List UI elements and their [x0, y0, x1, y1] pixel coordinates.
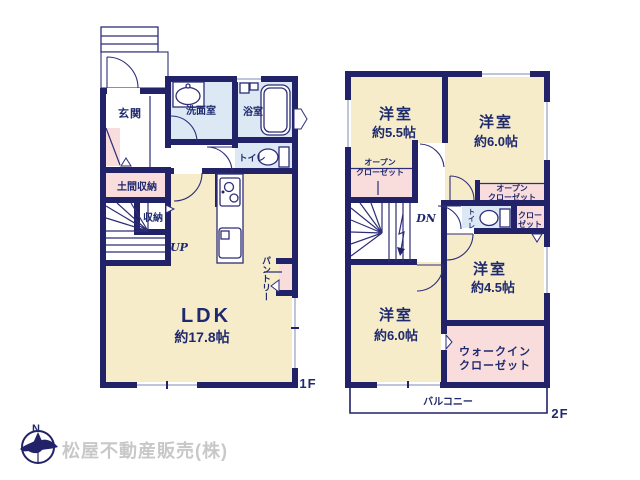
label-open-closet-left-2: クローゼット — [356, 167, 404, 177]
stairs-2f-floor — [348, 200, 420, 262]
company-name: 松屋不動産販売(株) — [62, 440, 228, 461]
label-closet-1: クロー — [518, 210, 542, 220]
label-room45-size: 約4.5帖 — [471, 280, 515, 295]
label-toilet-1f: トイレ — [238, 153, 265, 163]
label-open-closet-right-2: クローゼット — [488, 192, 536, 202]
label-up: UP — [170, 241, 189, 254]
toilet-icon-2f — [500, 209, 510, 227]
label-ldk: LDK — [181, 305, 231, 327]
label-pantry: パントリー — [261, 256, 271, 301]
label-wic-1: ウォークイン — [459, 345, 531, 358]
label-bathroom: 浴室 — [243, 105, 263, 118]
floorplan-1f: 玄関 洗面室 浴室 トイレ 土間収納 収納 UP LDK 約17.8帖 パントリ… — [100, 27, 317, 391]
floorplan-page: 玄関 洗面室 浴室 トイレ 土間収納 収納 UP LDK 約17.8帖 パントリ… — [0, 0, 640, 480]
label-ldk-size: 約17.8帖 — [174, 329, 229, 345]
label-balcony: バルコニー — [423, 396, 473, 408]
label-open-closet-right-1: オープン — [496, 183, 528, 193]
label-room60-top: 洋室 — [479, 113, 513, 131]
label-washroom: 洗面室 — [186, 104, 216, 117]
label-room55: 洋室 — [379, 105, 413, 123]
label-floor-2f: 2F — [551, 406, 568, 421]
label-room60-bottom-size: 約6.0帖 — [374, 328, 418, 343]
label-floor-1f: 1F — [299, 376, 316, 391]
label-closet-2: ゼット — [518, 219, 542, 229]
company-logo: N 松屋不動産販売(株) — [20, 423, 228, 463]
label-room45: 洋室 — [473, 260, 507, 278]
label-open-closet-left-1: オープン — [364, 157, 396, 167]
floorplan-drawing: 玄関 洗面室 浴室 トイレ 土間収納 収納 UP LDK 約17.8帖 パントリ… — [0, 0, 640, 480]
bath-counter-icon — [240, 83, 249, 93]
compass-icon: N — [20, 423, 58, 463]
label-dn: DN — [415, 212, 437, 225]
label-genkan: 玄関 — [118, 106, 142, 120]
toilet-icon-1f — [279, 147, 289, 167]
label-wic-2: クローゼット — [459, 358, 531, 372]
bath-vent-marker — [294, 109, 307, 129]
label-toilet-2f: トイレ — [468, 208, 476, 229]
genkan-step-marker — [121, 158, 131, 166]
compass-north-label: N — [32, 423, 40, 435]
fixtures-2f — [480, 209, 510, 227]
label-room60-bottom: 洋室 — [379, 306, 413, 324]
label-room60-top-size: 約6.0帖 — [474, 134, 518, 149]
label-storage: 収納 — [143, 211, 163, 224]
label-doma-storage: 土間収納 — [117, 180, 157, 193]
label-room55-size: 約5.5帖 — [372, 125, 416, 140]
floorplan-2f: 洋室 約5.5帖 洋室 約6.0帖 オープン クローゼット オープン クローゼッ… — [345, 71, 569, 421]
